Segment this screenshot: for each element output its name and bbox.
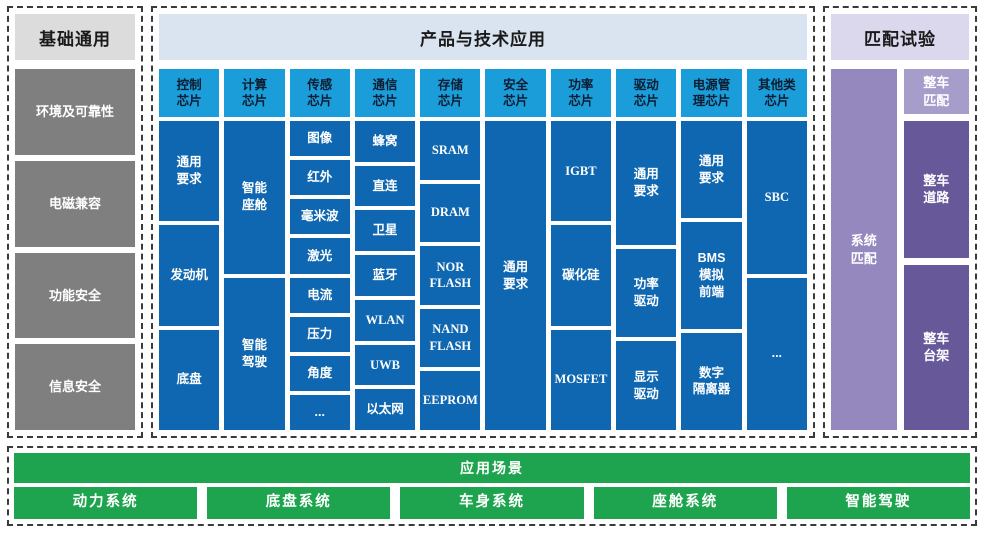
cell-cockpit-system: 座舱系统 — [594, 487, 777, 519]
cell-satellite: 卫星 — [355, 210, 415, 251]
matching-test-title: 匹配试验 — [831, 14, 969, 60]
cell-smart-driving-scenario: 智能驾驶 — [787, 487, 970, 519]
cell-chassis-system: 底盘系统 — [207, 487, 390, 519]
cell-dram: DRAM — [420, 184, 480, 243]
column-security-chip: 安全 芯片 通用 要求 — [485, 69, 545, 430]
cell-igbt: IGBT — [551, 121, 611, 221]
column-header: 传感 芯片 — [290, 69, 350, 117]
column-other-chip: 其他类 芯片 SBC ... — [747, 69, 807, 430]
basic-common-title: 基础通用 — [15, 14, 135, 60]
column-sensor-chip: 传感 芯片 图像 红外 毫米波 激光 电流 压力 角度 ... — [290, 69, 350, 430]
cell-nand-flash: NAND FLASH — [420, 309, 480, 368]
cell-smart-cockpit: 智能 座舱 — [224, 121, 284, 274]
column-header: 驱动 芯片 — [616, 69, 676, 117]
cell-body-system: 车身系统 — [400, 487, 583, 519]
basic-common-stack: 环境及可靠性 电磁兼容 功能安全 信息安全 — [15, 69, 135, 430]
cell-functional-safety: 功能安全 — [15, 253, 135, 339]
column-power-management-chip: 电源管 理芯片 通用 要求 BMS 模拟 前端 数字 隔离器 — [681, 69, 741, 430]
cell-environment-reliability: 环境及可靠性 — [15, 69, 135, 155]
cell-sbc: SBC — [747, 121, 807, 274]
cell-direct-connect: 直连 — [355, 166, 415, 207]
cell-smart-driving: 智能 驾驶 — [224, 278, 284, 431]
cell-bluetooth: 蓝牙 — [355, 255, 415, 296]
cell-bms-analog-front-end: BMS 模拟 前端 — [681, 222, 741, 329]
matching-test-panel: 匹配试验 系统 匹配 整车 匹配 整车 道路 整车 台架 — [823, 6, 977, 438]
products-title: 产品与技术应用 — [159, 14, 807, 60]
cell-information-security: 信息安全 — [15, 344, 135, 430]
column-computing-chip: 计算 芯片 智能 座舱 智能 驾驶 — [224, 69, 284, 430]
chip-columns: 控制 芯片 通用 要求 发动机 底盘 计算 芯片 智能 座舱 智能 驾驶 传 — [159, 69, 807, 430]
cell-general-requirements: 通用 要求 — [616, 121, 676, 245]
cell-chassis: 底盘 — [159, 330, 219, 430]
cell-uwb: UWB — [355, 345, 415, 386]
cell-eeprom: EEPROM — [420, 371, 480, 430]
cell-more-other: ... — [747, 278, 807, 431]
cell-general-requirements: 通用 要求 — [159, 121, 219, 221]
cell-mosfet: MOSFET — [551, 330, 611, 430]
cell-vehicle-road: 整车 道路 — [904, 121, 970, 257]
cell-nor-flash: NOR FLASH — [420, 246, 480, 305]
column-header: 通信 芯片 — [355, 69, 415, 117]
cell-vehicle-bench: 整车 台架 — [904, 265, 970, 430]
cell-infrared: 红外 — [290, 160, 350, 195]
cell-powertrain-system: 动力系统 — [14, 487, 197, 519]
application-scenarios-panel: 应用场景 动力系统 底盘系统 车身系统 座舱系统 智能驾驶 — [7, 446, 977, 526]
cell-digital-isolator: 数字 隔离器 — [681, 333, 741, 430]
cell-current: 电流 — [290, 278, 350, 313]
column-header: 安全 芯片 — [485, 69, 545, 117]
cell-engine: 发动机 — [159, 225, 219, 325]
column-driver-chip: 驱动 芯片 通用 要求 功率 驱动 显示 驱动 — [616, 69, 676, 430]
cell-display-driver: 显示 驱动 — [616, 341, 676, 430]
cell-angle: 角度 — [290, 356, 350, 391]
column-header: 功率 芯片 — [551, 69, 611, 117]
top-row: 基础通用 环境及可靠性 电磁兼容 功能安全 信息安全 产品与技术应用 控制 芯片… — [7, 6, 977, 438]
cell-lidar: 激光 — [290, 238, 350, 273]
cell-sram: SRAM — [420, 121, 480, 180]
cell-ethernet: 以太网 — [355, 389, 415, 430]
cell-power-driver: 功率 驱动 — [616, 249, 676, 338]
cell-pressure: 压力 — [290, 317, 350, 352]
cell-cellular: 蜂窝 — [355, 121, 415, 162]
standards-diagram: 基础通用 环境及可靠性 电磁兼容 功能安全 信息安全 产品与技术应用 控制 芯片… — [0, 0, 984, 533]
column-power-chip: 功率 芯片 IGBT 碳化硅 MOSFET — [551, 69, 611, 430]
cell-silicon-carbide: 碳化硅 — [551, 225, 611, 325]
cell-general-requirements: 通用 要求 — [681, 121, 741, 218]
cell-vehicle-matching: 整车 匹配 — [904, 69, 970, 114]
column-header: 计算 芯片 — [224, 69, 284, 117]
cell-emc: 电磁兼容 — [15, 161, 135, 247]
column-header: 存储 芯片 — [420, 69, 480, 117]
cell-more-sensors: ... — [290, 395, 350, 430]
basic-common-panel: 基础通用 环境及可靠性 电磁兼容 功能安全 信息安全 — [7, 6, 143, 438]
products-panel: 产品与技术应用 控制 芯片 通用 要求 发动机 底盘 计算 芯片 智能 座舱 智… — [151, 6, 815, 438]
column-header: 其他类 芯片 — [747, 69, 807, 117]
cell-system-matching: 系统 匹配 — [831, 69, 897, 430]
cell-general-requirements: 通用 要求 — [485, 121, 545, 430]
cell-mmwave: 毫米波 — [290, 199, 350, 234]
column-header: 控制 芯片 — [159, 69, 219, 117]
cell-image: 图像 — [290, 121, 350, 156]
column-communication-chip: 通信 芯片 蜂窝 直连 卫星 蓝牙 WLAN UWB 以太网 — [355, 69, 415, 430]
application-scenarios-title: 应用场景 — [14, 453, 970, 483]
cell-wlan: WLAN — [355, 300, 415, 341]
column-control-chip: 控制 芯片 通用 要求 发动机 底盘 — [159, 69, 219, 430]
column-header: 电源管 理芯片 — [681, 69, 741, 117]
column-storage-chip: 存储 芯片 SRAM DRAM NOR FLASH NAND FLASH EEP… — [420, 69, 480, 430]
